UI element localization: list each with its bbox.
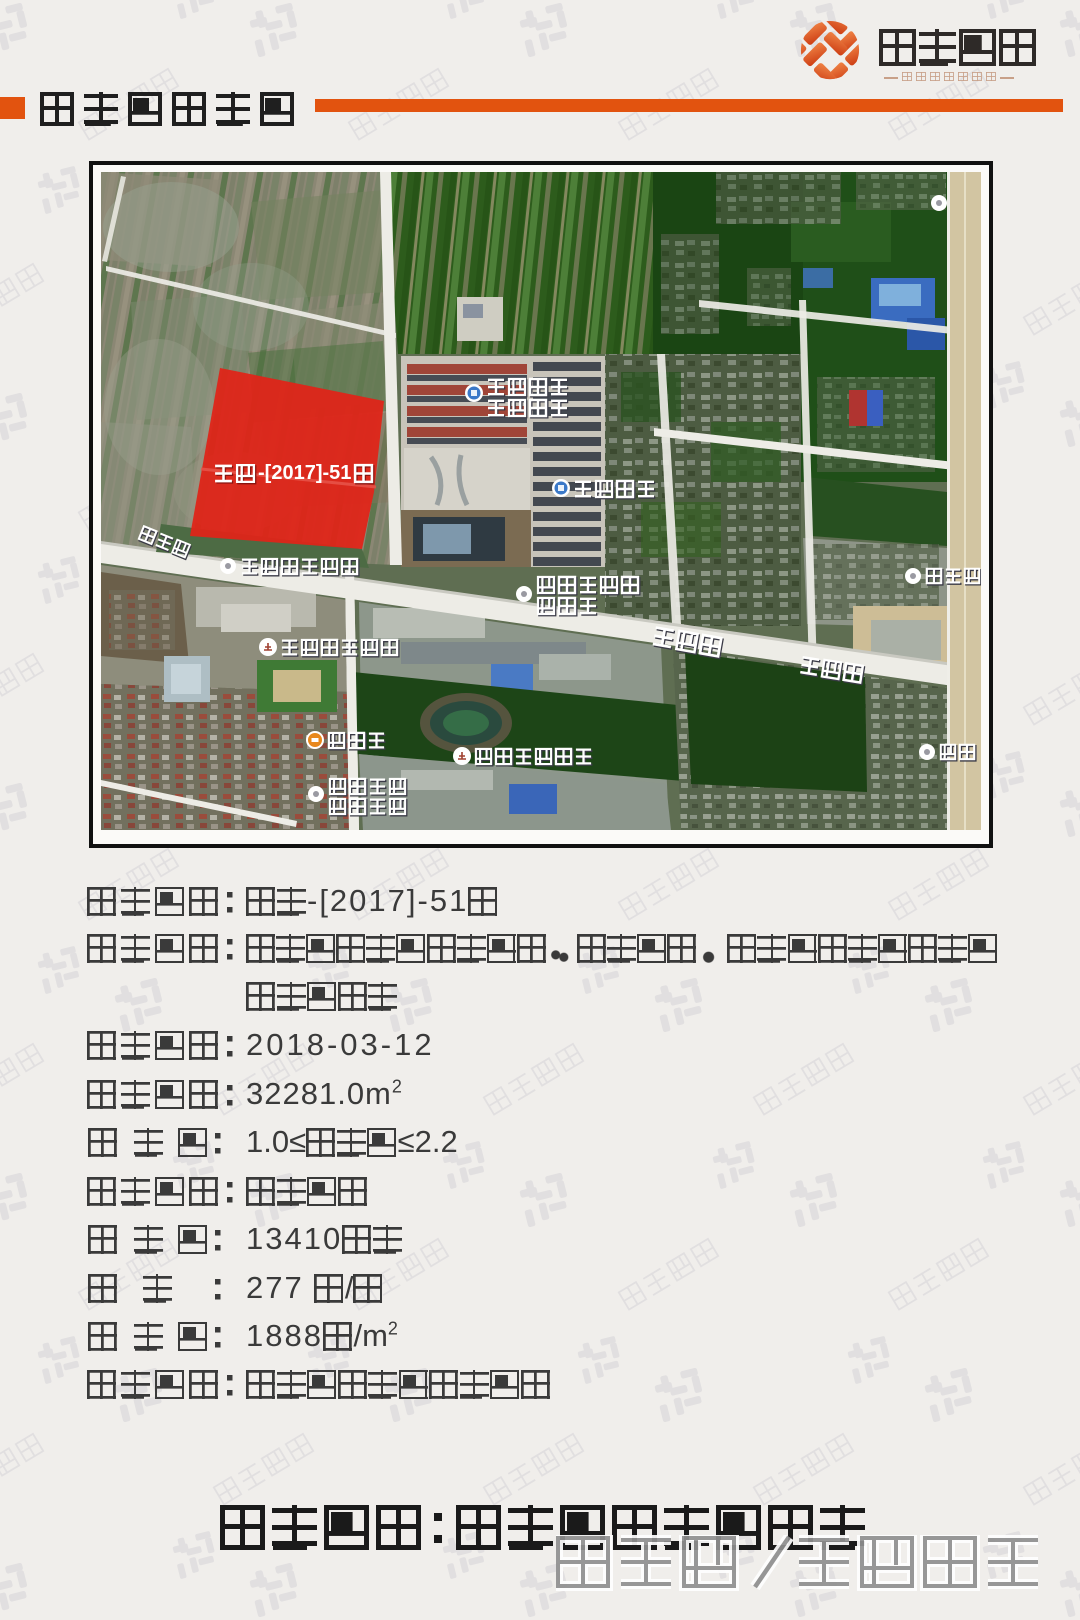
- svg-text:-[2017]-51: -[2017]-51: [258, 462, 351, 484]
